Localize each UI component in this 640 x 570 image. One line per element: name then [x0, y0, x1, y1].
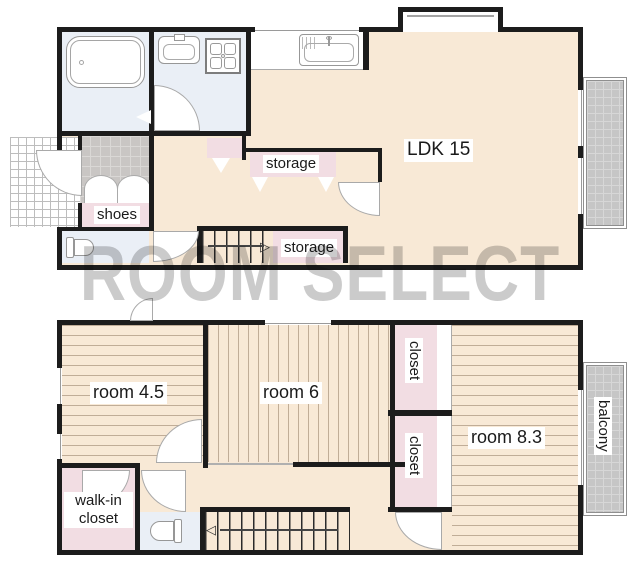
walk-in-closet-label: walk-in closet	[64, 492, 133, 528]
window	[57, 434, 62, 459]
threshold-line	[208, 463, 293, 465]
room-8-3-label: room 8.3	[468, 427, 545, 449]
toilet-icon	[150, 521, 174, 541]
shoes-label: shoes	[94, 206, 140, 224]
wall	[57, 131, 251, 136]
wall	[200, 512, 205, 550]
bay-window	[398, 7, 503, 32]
stove-icon	[205, 38, 241, 74]
wall	[293, 462, 415, 467]
wall	[246, 27, 251, 136]
wall	[390, 320, 395, 512]
room-4-5-label: room 4.5	[90, 382, 167, 404]
kitchen-sink-icon	[299, 34, 359, 66]
shoe-cabinet-door-arc	[84, 175, 118, 203]
closet-bifold-track	[437, 325, 452, 507]
stairs-down	[205, 512, 350, 550]
stove-burner	[224, 43, 236, 55]
stairs-arrow	[220, 529, 338, 531]
washbasin-icon	[158, 36, 200, 64]
wall	[57, 463, 139, 468]
ldk-label: LDK 15	[404, 139, 473, 162]
wall	[246, 148, 382, 152]
balcony-label: balcony	[594, 397, 612, 455]
wall	[149, 136, 154, 231]
wall	[203, 320, 208, 468]
window	[578, 158, 583, 214]
stove-burner	[210, 57, 222, 69]
wall	[363, 27, 369, 70]
washbasin-bowl	[163, 44, 195, 60]
window	[255, 27, 359, 32]
stove-burner	[224, 57, 236, 69]
wall	[135, 463, 140, 550]
window	[578, 90, 583, 146]
floorplan-page: { "watermark": "ROOM SELECT", "palette":…	[0, 0, 640, 570]
sink-faucet-head	[326, 36, 332, 40]
stove-burner	[210, 43, 222, 55]
shoe-cabinet-door-arc	[117, 175, 151, 203]
stove-knob	[221, 54, 225, 58]
wall	[388, 410, 452, 416]
terrace	[586, 80, 624, 226]
stairs-down-arrow-icon: ◁	[206, 523, 216, 536]
window-glass-line	[407, 15, 494, 17]
wall	[200, 507, 350, 512]
bathtub-icon	[66, 36, 145, 88]
room-6-label: room 6	[260, 382, 322, 404]
toilet-tank	[174, 519, 182, 543]
storage-upper-label: storage	[263, 155, 319, 173]
wall	[378, 148, 382, 182]
hall-closet	[207, 138, 242, 158]
window	[578, 390, 583, 485]
watermark: ROOM SELECT	[57, 234, 583, 312]
washbasin-faucet	[174, 34, 185, 41]
window	[57, 368, 62, 404]
closet-lower-label: closet	[405, 433, 423, 478]
closet-upper-label: closet	[405, 338, 423, 383]
bathtub-drain	[79, 60, 84, 65]
window	[265, 320, 331, 325]
wall	[78, 203, 82, 231]
